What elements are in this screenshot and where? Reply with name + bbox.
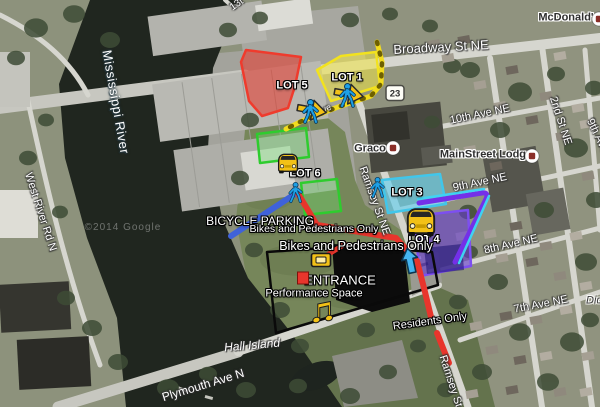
entrance-marker bbox=[298, 272, 309, 284]
lot4-arrow-icon bbox=[399, 247, 420, 275]
entrance-ticket-icon bbox=[312, 254, 331, 267]
map-canvas[interactable]: 13tBroadway St NEMcDonald'sMississippi R… bbox=[0, 0, 600, 407]
svg-text:23: 23 bbox=[390, 89, 401, 100]
pedestrian-icon-lot3 bbox=[372, 177, 383, 196]
pedestrian-icon-bike-path bbox=[290, 182, 301, 201]
mcdonalds-marker[interactable] bbox=[592, 12, 600, 26]
map-icons: 23 bbox=[0, 0, 600, 407]
car-icon-lot6 bbox=[279, 154, 298, 173]
pedestrian-route-icon-2 bbox=[296, 98, 328, 123]
mainstreet-lodge-marker[interactable] bbox=[525, 149, 539, 163]
performance-music-icon bbox=[312, 302, 333, 324]
car-icon-lot3 bbox=[408, 209, 434, 236]
pedestrian-route-icon-1 bbox=[333, 82, 365, 107]
highway-23-shield: 23 bbox=[386, 86, 404, 101]
graco-marker[interactable] bbox=[386, 141, 400, 155]
